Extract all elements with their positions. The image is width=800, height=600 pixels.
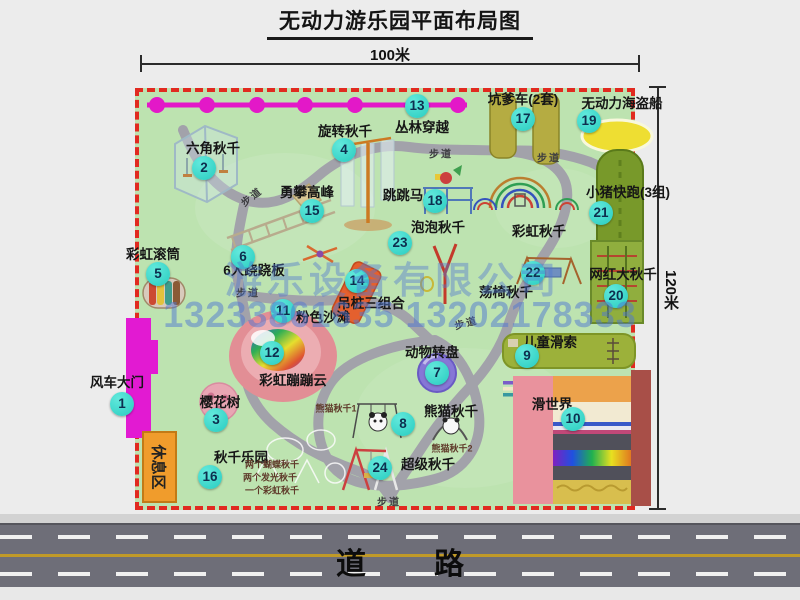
attraction-badge-12: 12 xyxy=(260,341,284,365)
attraction-badge-20: 20 xyxy=(604,284,628,308)
attraction-badge-22: 22 xyxy=(521,261,545,285)
attraction-label-18: 跳跳马 xyxy=(383,184,424,204)
attraction-badge-17: 17 xyxy=(511,107,535,131)
attraction-badge-8: 8 xyxy=(391,412,415,436)
dimension-right-tick-top xyxy=(649,86,666,88)
attraction-label-13: 丛林穿越 xyxy=(395,116,449,136)
slide-world-art xyxy=(503,370,651,506)
sub-label-4: 一个彩虹秋千 xyxy=(245,484,299,497)
walkway-label-2: 步道 xyxy=(537,150,561,165)
dimension-right-label: 120米 xyxy=(660,270,681,310)
attraction-label-21: 小猪快跑(3组) xyxy=(586,181,670,201)
attraction-badge-19: 19 xyxy=(577,109,601,133)
attraction-badge-7: 7 xyxy=(425,361,449,385)
attraction-label-20: 网红大秋千 xyxy=(589,263,657,283)
attraction-badge-3: 3 xyxy=(204,408,228,432)
dimension-right-line xyxy=(657,86,659,510)
attraction-label-15: 勇攀高峰 xyxy=(280,181,334,201)
attraction-badge-24: 24 xyxy=(368,456,392,480)
road-label: 道路 xyxy=(34,539,800,583)
playground-plan-page: 无动力游乐园平面布局图 100米 120米 xyxy=(0,0,800,600)
attraction-badge-15: 15 xyxy=(300,199,324,223)
attraction-label-22: 荡椅秋千 xyxy=(479,281,533,301)
below-road-strip xyxy=(0,587,800,600)
attraction-badge-23: 23 xyxy=(388,231,412,255)
walkway-label-5: 步道 xyxy=(377,494,401,509)
sub-label-3: 两个发光秋千 xyxy=(243,471,297,484)
attraction-label-7: 动物转盘 xyxy=(405,341,459,361)
dimension-top-tick-right xyxy=(638,55,640,72)
attraction-label-1: 风车大门 xyxy=(90,371,144,391)
dimension-top-tick-left xyxy=(140,55,142,72)
rest-area-label: 休息区 xyxy=(149,444,170,489)
road: 道路 xyxy=(0,525,800,587)
sub-label-1: 熊猫秋千2 xyxy=(431,442,472,455)
attraction-label-24: 超级秋千 xyxy=(401,453,455,473)
attraction-label-17: 坑爹车(2套) xyxy=(488,88,559,108)
walkway-label-3: 步道 xyxy=(236,285,260,300)
attraction-badge-18: 18 xyxy=(423,189,447,213)
dimension-top-label: 100米 xyxy=(140,44,640,65)
attraction-badge-6: 6 xyxy=(231,245,255,269)
sub-label-0: 熊猫秋千1 xyxy=(315,402,356,415)
page-title: 无动力游乐园平面布局图 xyxy=(267,5,533,40)
page-title-wrap: 无动力游乐园平面布局图 xyxy=(0,5,800,40)
attraction-badge-10: 10 xyxy=(561,407,585,431)
attraction-badge-11: 11 xyxy=(271,299,295,323)
bubble-swing-art xyxy=(421,244,456,304)
attraction-badge-14: 14 xyxy=(345,269,369,293)
attraction-label-23: 泡泡秋千 xyxy=(411,216,465,236)
attraction-label-12: 彩虹蹦蹦云 xyxy=(259,369,327,389)
attraction-label-4: 旋转秋千 xyxy=(318,120,372,140)
attraction-badge-1: 1 xyxy=(110,392,134,416)
sub-label-2: 两个蝴蝶秋千 xyxy=(245,458,299,471)
attraction-label-8: 熊猫秋千 xyxy=(424,400,478,420)
attraction-badge-9: 9 xyxy=(515,344,539,368)
walkway-label-1: 步道 xyxy=(429,146,453,161)
attraction-badge-16: 16 xyxy=(198,465,222,489)
attraction-badge-4: 4 xyxy=(332,138,356,162)
attraction-badge-5: 5 xyxy=(146,262,170,286)
sidewalk-strip xyxy=(0,514,800,525)
dimension-top-line xyxy=(140,63,640,65)
map-label-0: 彩虹秋千 xyxy=(512,220,566,240)
attraction-badge-13: 13 xyxy=(405,94,429,118)
attraction-badge-2: 2 xyxy=(192,156,216,180)
attraction-badge-21: 21 xyxy=(589,201,613,225)
attraction-label-2: 六角秋千 xyxy=(186,137,240,157)
attraction-label-5: 彩虹滚筒 xyxy=(126,243,180,263)
attraction-label-14: 吊桩三组合 xyxy=(337,292,405,312)
dimension-right-tick-bottom xyxy=(649,508,666,510)
